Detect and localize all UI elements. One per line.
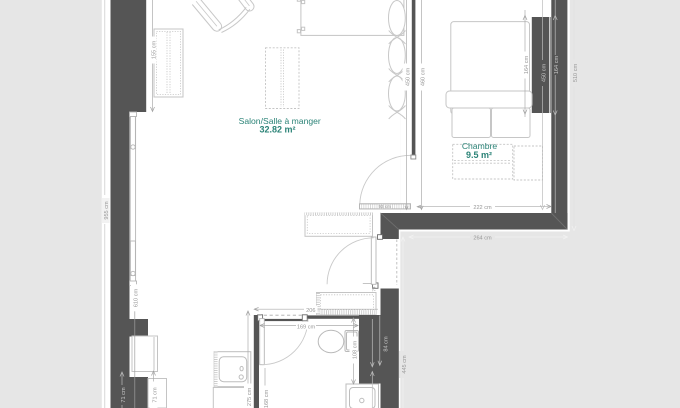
- svg-text:955 cm: 955 cm: [104, 201, 110, 220]
- svg-text:168 cm: 168 cm: [264, 389, 270, 408]
- svg-text:445 cm: 445 cm: [402, 355, 408, 374]
- svg-text:275 cm: 275 cm: [247, 387, 253, 406]
- svg-text:164 cm: 164 cm: [524, 55, 530, 74]
- svg-text:164 cm: 164 cm: [554, 55, 560, 74]
- svg-text:9.5 m²: 9.5 m²: [466, 150, 492, 160]
- svg-text:84 cm: 84 cm: [383, 336, 389, 352]
- svg-text:71 cm: 71 cm: [152, 387, 158, 403]
- svg-text:460 cm: 460 cm: [420, 67, 426, 86]
- svg-text:610 cm: 610 cm: [134, 288, 140, 307]
- svg-text:74: 74: [371, 286, 377, 292]
- svg-text:206: 206: [306, 308, 315, 314]
- svg-text:169 cm: 169 cm: [297, 324, 316, 330]
- svg-text:264 cm: 264 cm: [473, 236, 492, 242]
- svg-text:155 cm: 155 cm: [151, 40, 157, 59]
- svg-text:32.82 m²: 32.82 m²: [259, 125, 295, 135]
- svg-text:108 cm: 108 cm: [352, 340, 358, 359]
- svg-text:450 cm: 450 cm: [405, 67, 411, 86]
- svg-text:222 cm: 222 cm: [473, 205, 492, 211]
- svg-text:450 cm: 450 cm: [541, 63, 547, 82]
- svg-text:71 cm: 71 cm: [121, 387, 127, 403]
- svg-text:93 cm: 93 cm: [379, 204, 392, 209]
- svg-text:510 cm: 510 cm: [573, 63, 579, 82]
